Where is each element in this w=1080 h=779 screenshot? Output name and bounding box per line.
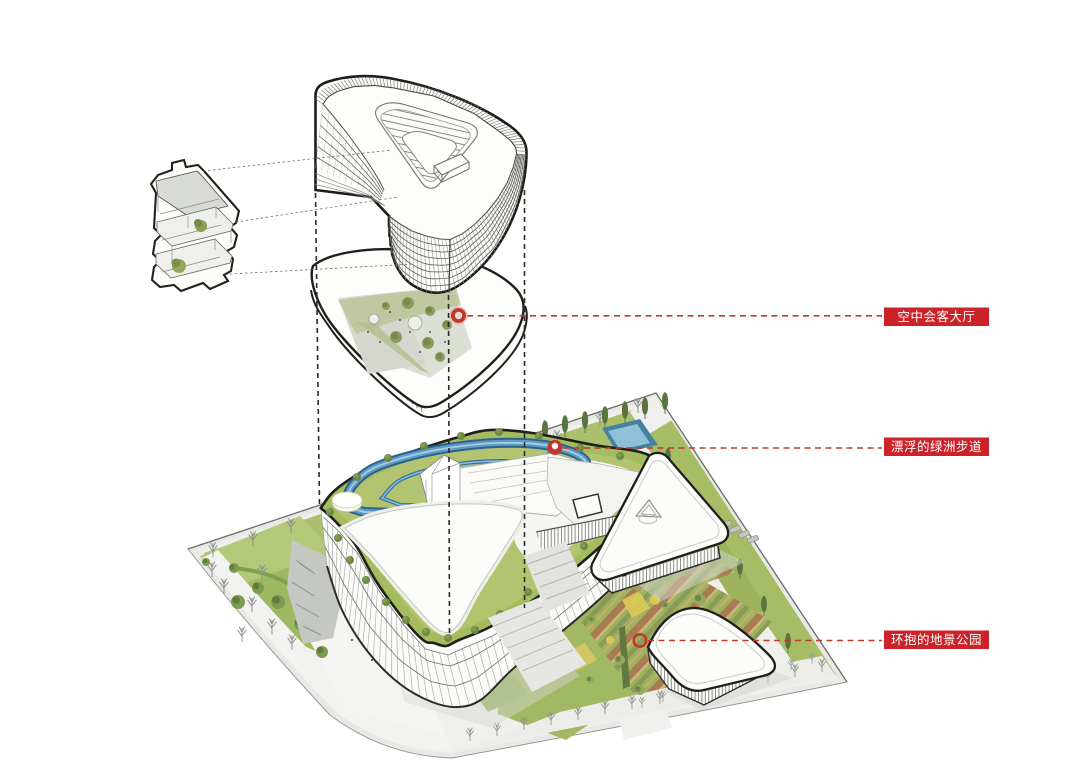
svg-text:空中会客大厅: 空中会客大厅 — [897, 309, 975, 324]
svg-text:环抱的地景公园: 环抱的地景公园 — [891, 632, 982, 647]
svg-text:漂浮的绿洲步道: 漂浮的绿洲步道 — [891, 439, 982, 454]
